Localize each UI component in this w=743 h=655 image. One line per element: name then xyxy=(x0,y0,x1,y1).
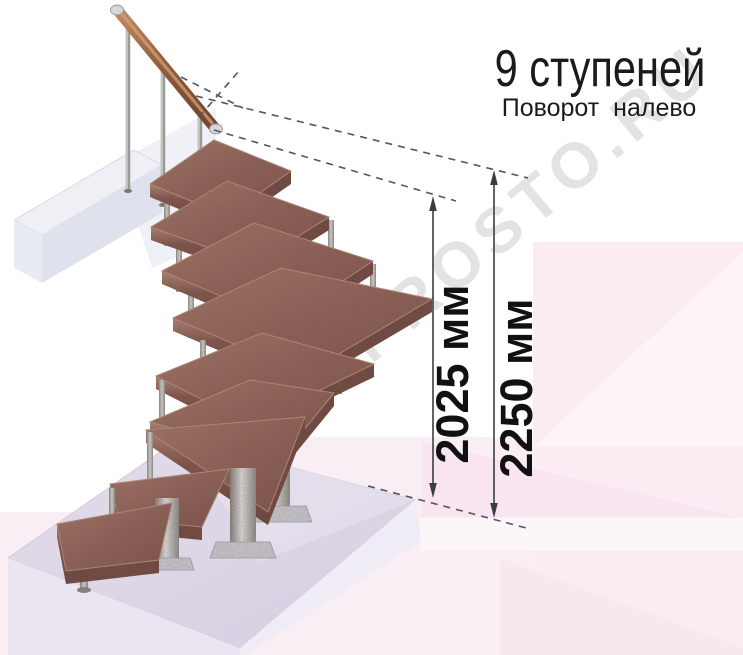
handrail-end-cap-top xyxy=(111,5,124,15)
page-subtitle: Поворот налево xyxy=(502,94,697,122)
dimension-2025-label: 2025 мм xyxy=(427,284,478,463)
staircase-illustration: LESTNICA-PROSTO.RU xyxy=(0,0,743,655)
heading: 9 ступеней Поворот налево xyxy=(495,39,706,122)
dimension-2250-label: 2250 мм xyxy=(491,298,542,477)
support-rod xyxy=(147,432,153,482)
page-title: 9 ступеней xyxy=(495,39,706,98)
illustration-canvas: LESTNICA-PROSTO.RU xyxy=(0,0,743,655)
